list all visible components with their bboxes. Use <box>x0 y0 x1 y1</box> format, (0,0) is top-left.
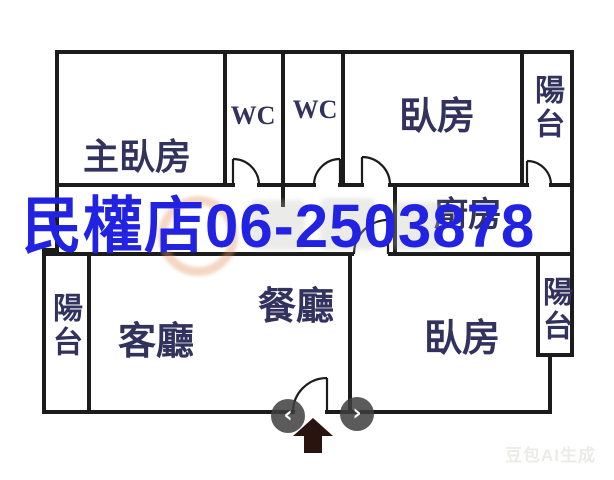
entrance-arrow-icon <box>0 0 614 480</box>
listing-photo: 主臥房 WC WC 臥房 陽台 廚房 陽台 客廳 餐廳 臥房 陽台 民權店06-… <box>0 0 614 480</box>
ai-watermark: 豆包AI生成 <box>505 441 596 466</box>
